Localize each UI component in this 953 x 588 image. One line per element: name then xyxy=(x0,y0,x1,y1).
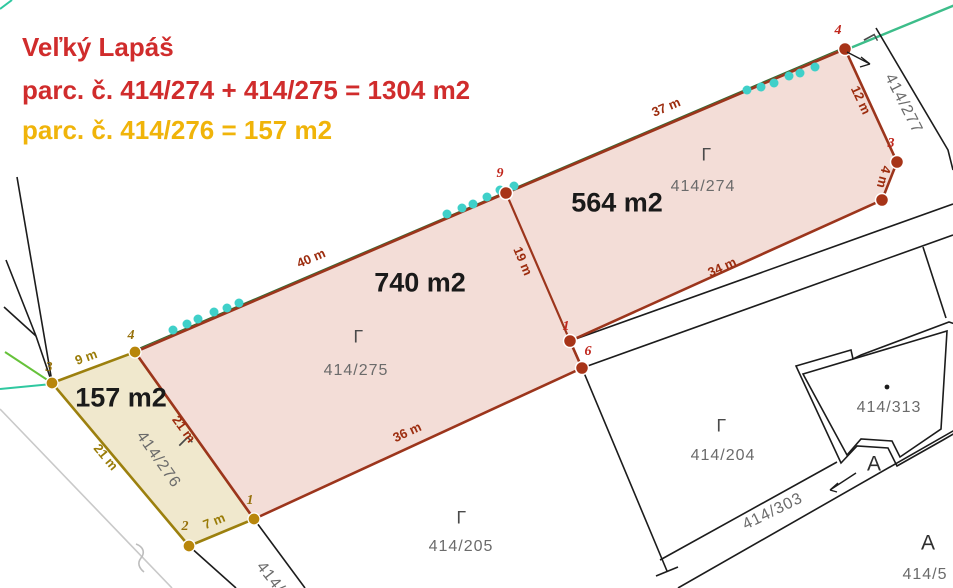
parcel-number-414-274: 414/274 xyxy=(671,179,736,195)
area-label-414-275: 740 m2 xyxy=(374,270,466,297)
cadastral-map-view: Veľký Lapáš parc. č. 414/274 + 414/275 =… xyxy=(0,0,953,588)
legend-yellow-parcel: parc. č. 414/276 = 157 m2 xyxy=(22,117,332,143)
point-label-yellow-2: 2 xyxy=(182,520,189,534)
parcel-number-414-205: 414/205 xyxy=(429,539,494,555)
parcel-number-414-275: 414/275 xyxy=(324,363,389,379)
building-center-dot xyxy=(885,385,890,390)
legend-town-title: Veľký Lapáš xyxy=(22,34,174,60)
land-use-icon: Γ xyxy=(353,330,362,347)
point-label-red-3: 3 xyxy=(888,137,895,151)
building-a-mark: A xyxy=(921,533,935,554)
land-use-icon: Γ xyxy=(456,511,465,528)
area-label-414-274: 564 m2 xyxy=(571,190,663,217)
land-use-icon: Γ xyxy=(716,419,725,436)
land-use-icon: Γ xyxy=(701,148,710,165)
point-label-red-4: 4 xyxy=(835,24,842,38)
point-label-red-6: 6 xyxy=(585,345,592,359)
point-label-yellow-4: 4 xyxy=(128,329,135,343)
parcel-number-414-5: 414/5 xyxy=(902,567,947,583)
point-label-red-1: 1 xyxy=(563,320,570,334)
legend-red-parcels: parc. č. 414/274 + 414/275 = 1304 m2 xyxy=(22,77,470,103)
parcel-number-414-204: 414/204 xyxy=(691,448,756,464)
road-upper-line xyxy=(660,462,837,560)
area-label-414-276: 157 m2 xyxy=(75,385,167,412)
building-a-mark: A xyxy=(867,454,881,475)
parcel-number-414-313: 414/313 xyxy=(857,400,922,416)
point-label-yellow-3: 3 xyxy=(46,361,53,375)
point-label-yellow-1: 1 xyxy=(247,494,254,508)
point-label-red-9: 9 xyxy=(497,167,504,181)
